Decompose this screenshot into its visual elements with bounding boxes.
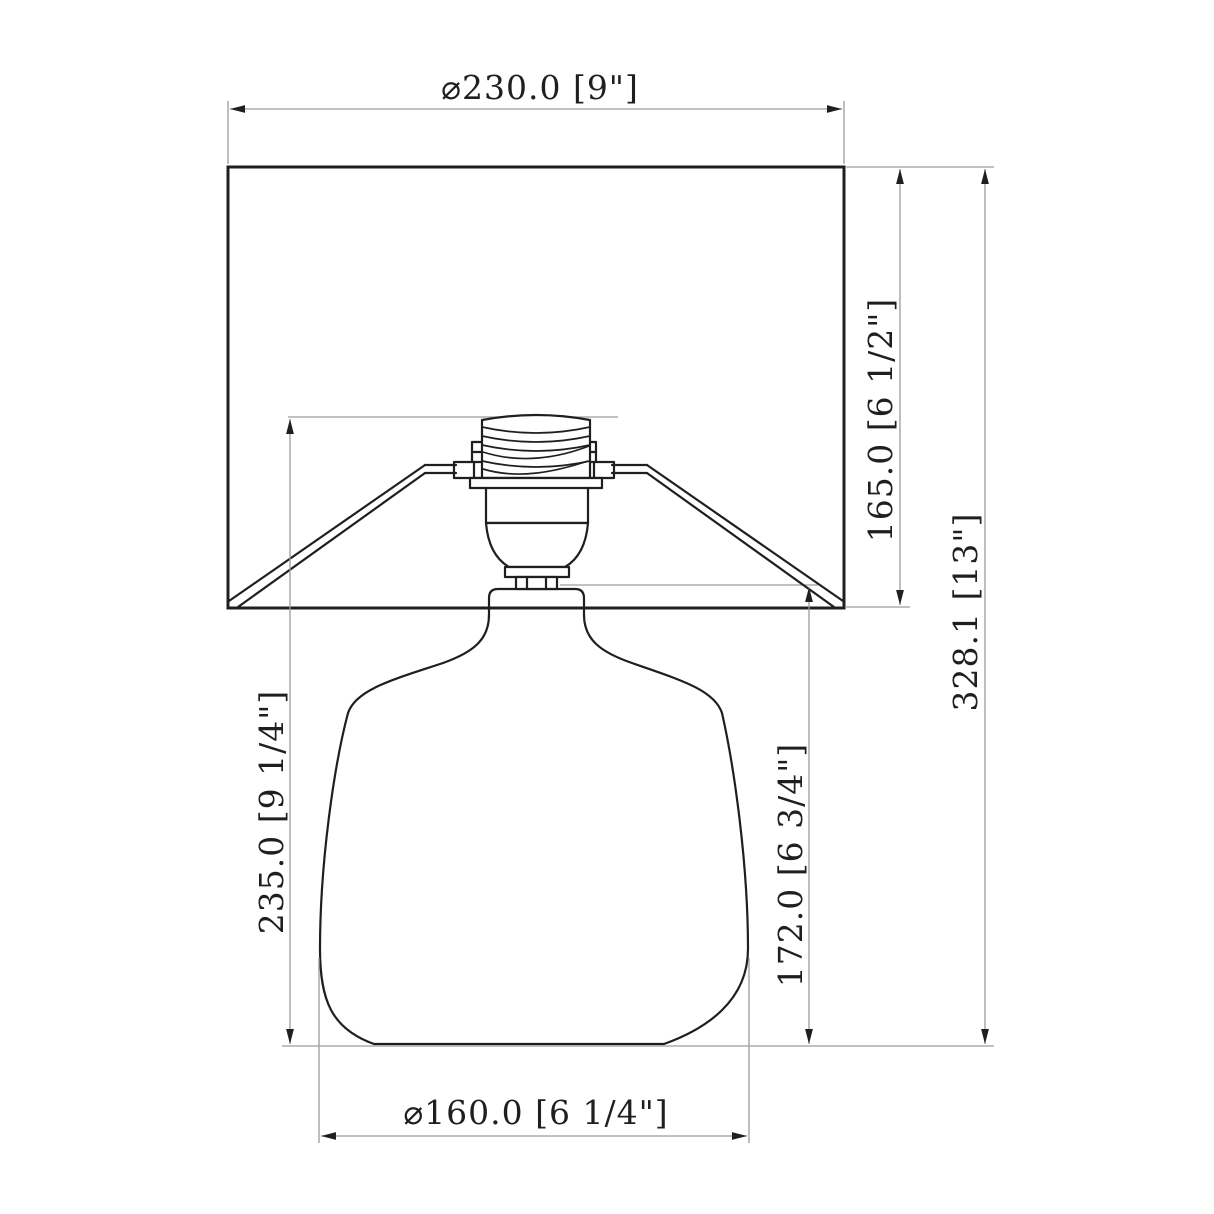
shade-height-label: 165.0 [6 1/2"] xyxy=(861,298,900,542)
dimension-socket-to-base-height: 235.0 [9 1/4"] xyxy=(252,419,291,1044)
lamp-socket xyxy=(454,415,614,589)
spider-arm-left xyxy=(229,465,425,601)
body-height-label: 172.0 [6 3/4"] xyxy=(771,743,810,987)
drawing-canvas: ⌀230.0 [9"] 165.0 [6 1/2"] 328.1 [13"] 2… xyxy=(0,0,1214,1214)
socket-flange xyxy=(505,567,569,577)
lamp-body-outline xyxy=(320,615,748,1044)
dimension-body-height: 172.0 [6 3/4"] xyxy=(771,587,810,1044)
base-diameter-label: ⌀160.0 [6 1/4"] xyxy=(403,1093,668,1132)
spider-tab-left xyxy=(454,462,474,478)
socket-washer xyxy=(470,478,602,488)
spider-arm-left xyxy=(238,473,425,607)
dimension-overall-height: 328.1 [13"] xyxy=(946,169,985,1044)
lamp-body-neck-cap xyxy=(489,589,584,617)
dimension-shade-diameter: ⌀230.0 [9"] xyxy=(228,68,844,164)
spider-arm-right xyxy=(647,465,843,601)
lamp-technical-drawing: ⌀230.0 [9"] 165.0 [6 1/2"] 328.1 [13"] 2… xyxy=(0,0,1214,1214)
shade-diameter-label: ⌀230.0 [9"] xyxy=(441,68,639,107)
socket-threaded-cap xyxy=(482,415,590,478)
socket-to-base-height-label: 235.0 [9 1/4"] xyxy=(252,690,291,934)
lamp-body xyxy=(320,589,748,1044)
socket-stem xyxy=(516,577,557,589)
spider-arm-right xyxy=(647,473,834,607)
overall-height-label: 328.1 [13"] xyxy=(946,513,985,712)
socket-bell xyxy=(486,523,588,567)
spider-tab-right xyxy=(594,462,614,478)
